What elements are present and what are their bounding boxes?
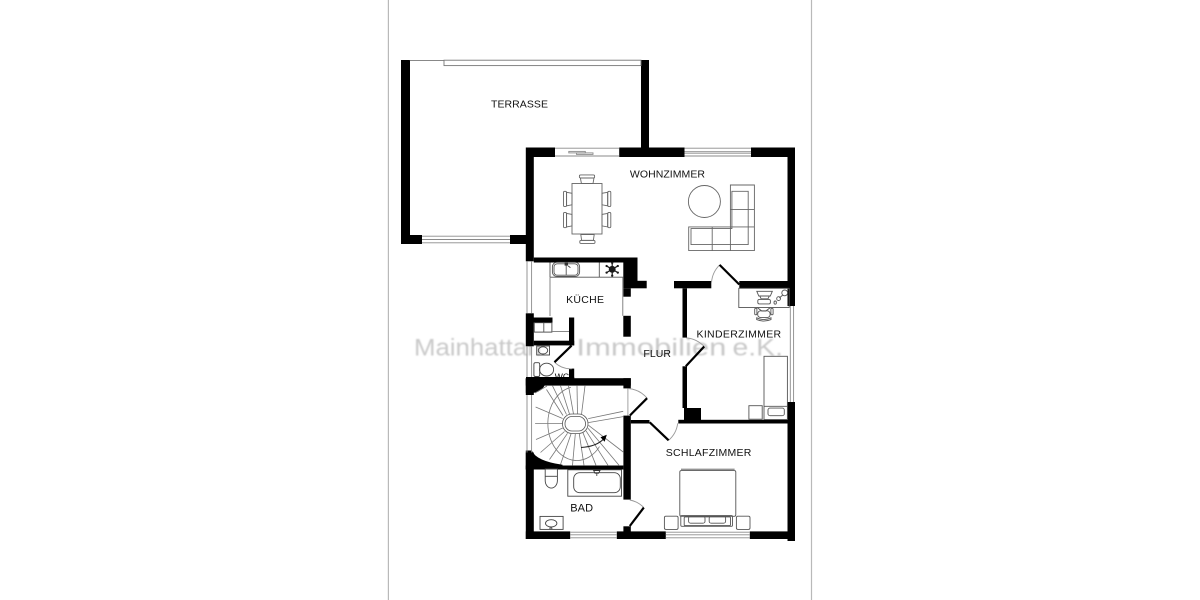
svg-text:SCHLAFZIMMER: SCHLAFZIMMER [666,447,752,459]
svg-text:TERRASSE: TERRASSE [491,99,548,111]
svg-text:KINDERZIMMER: KINDERZIMMER [697,328,782,340]
svg-text:WOHNZIMMER: WOHNZIMMER [630,169,706,181]
svg-text:WC: WC [555,371,569,381]
svg-text:FLUR: FLUR [643,348,671,360]
svg-text:KÜCHE: KÜCHE [566,294,604,306]
svg-text:BAD: BAD [570,503,593,515]
svg-text:Mainhattan: Mainhattan [414,335,542,362]
